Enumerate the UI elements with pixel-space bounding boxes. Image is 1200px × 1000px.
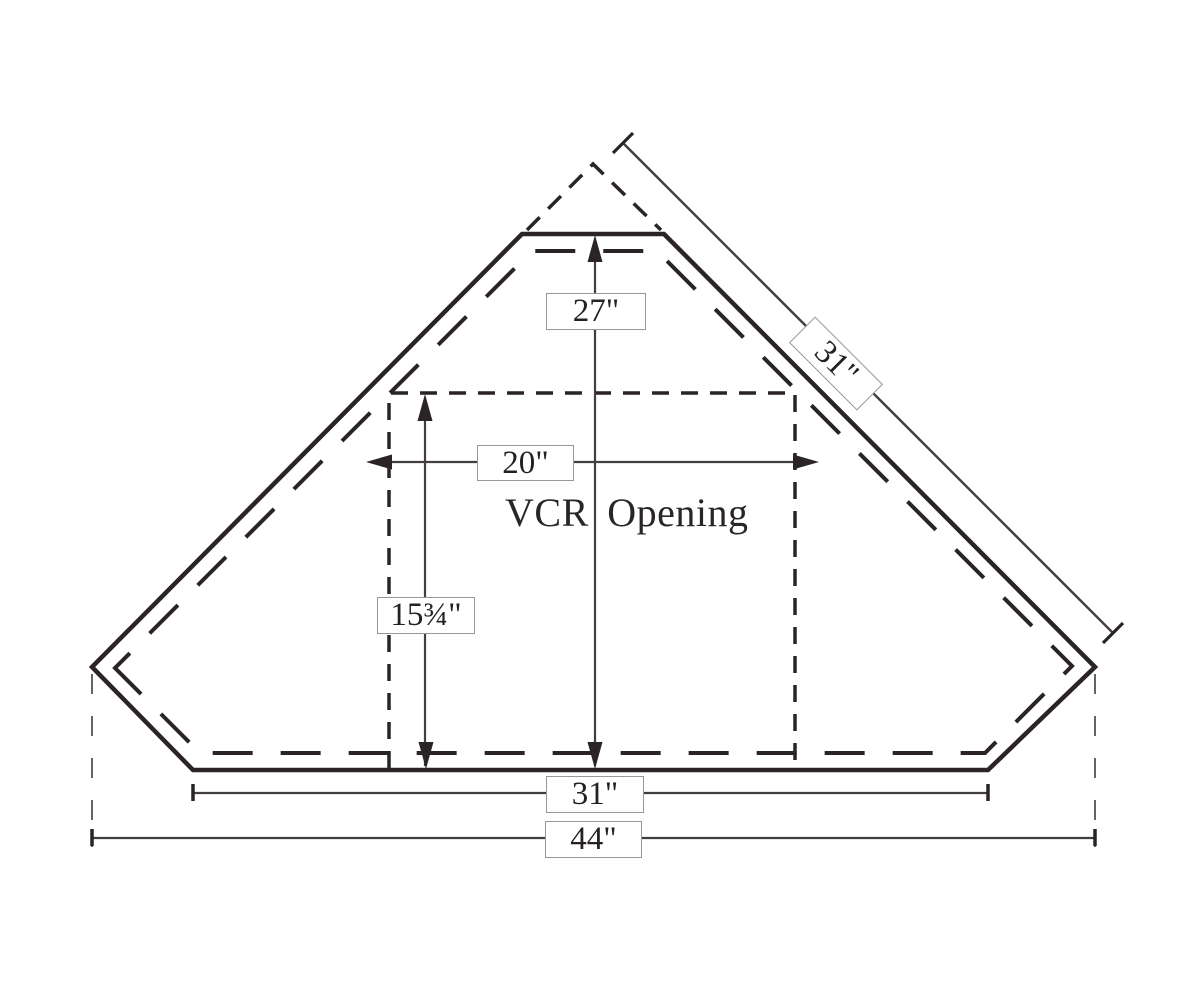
arrowhead-up-opening-depth-icon <box>418 394 433 421</box>
arrowhead-down-27-icon <box>588 742 603 769</box>
arrowhead-left-opening-width-icon <box>366 455 392 470</box>
dim-label-opening-depth-1575: 15¾" <box>377 597 475 634</box>
dim-label-front-edge-31: 31" <box>546 776 644 813</box>
dimension-diagram: 27" 20" 15¾" 31" 31" 44" VCR Opening <box>0 0 1200 1000</box>
arrowhead-down-opening-depth-icon <box>419 742 434 769</box>
vcr-opening-dashed-rect <box>389 393 795 768</box>
dim-label-opening-width-20: 20" <box>477 445 574 481</box>
dim-label-overall-width-44: 44" <box>545 821 642 858</box>
vcr-opening-caption: VCR Opening <box>505 493 749 533</box>
arrowhead-right-opening-width-icon <box>793 455 819 470</box>
dim-label-depth-27: 27" <box>546 293 646 330</box>
arrowhead-up-27-icon <box>588 235 603 262</box>
clipped-corner-dashed-lines <box>527 164 661 230</box>
